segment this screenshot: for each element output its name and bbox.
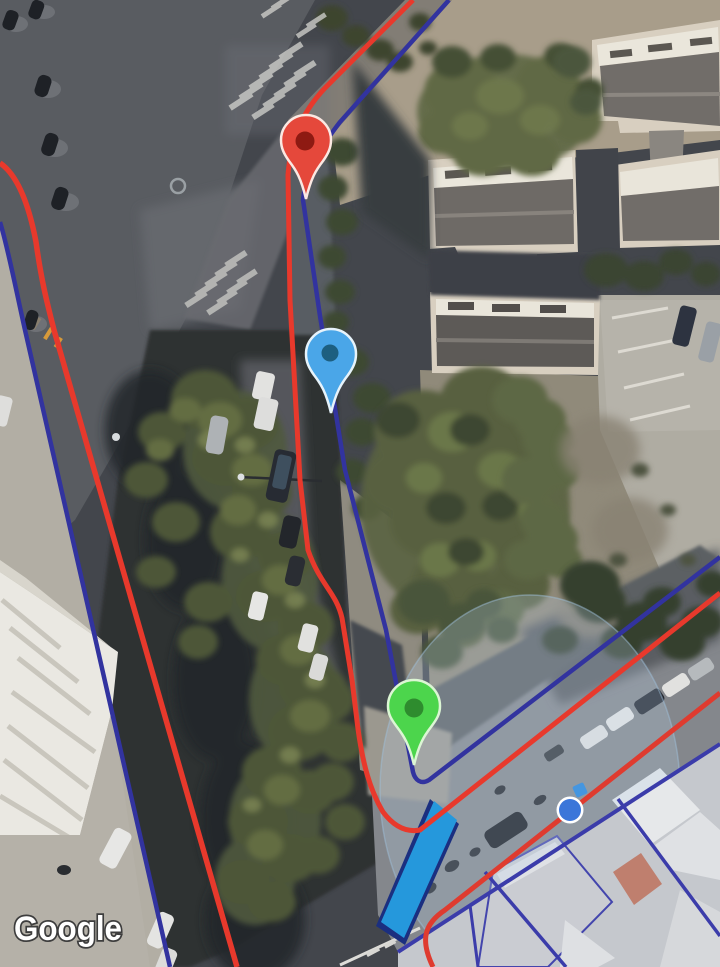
svg-text:Google: Google bbox=[14, 910, 122, 948]
